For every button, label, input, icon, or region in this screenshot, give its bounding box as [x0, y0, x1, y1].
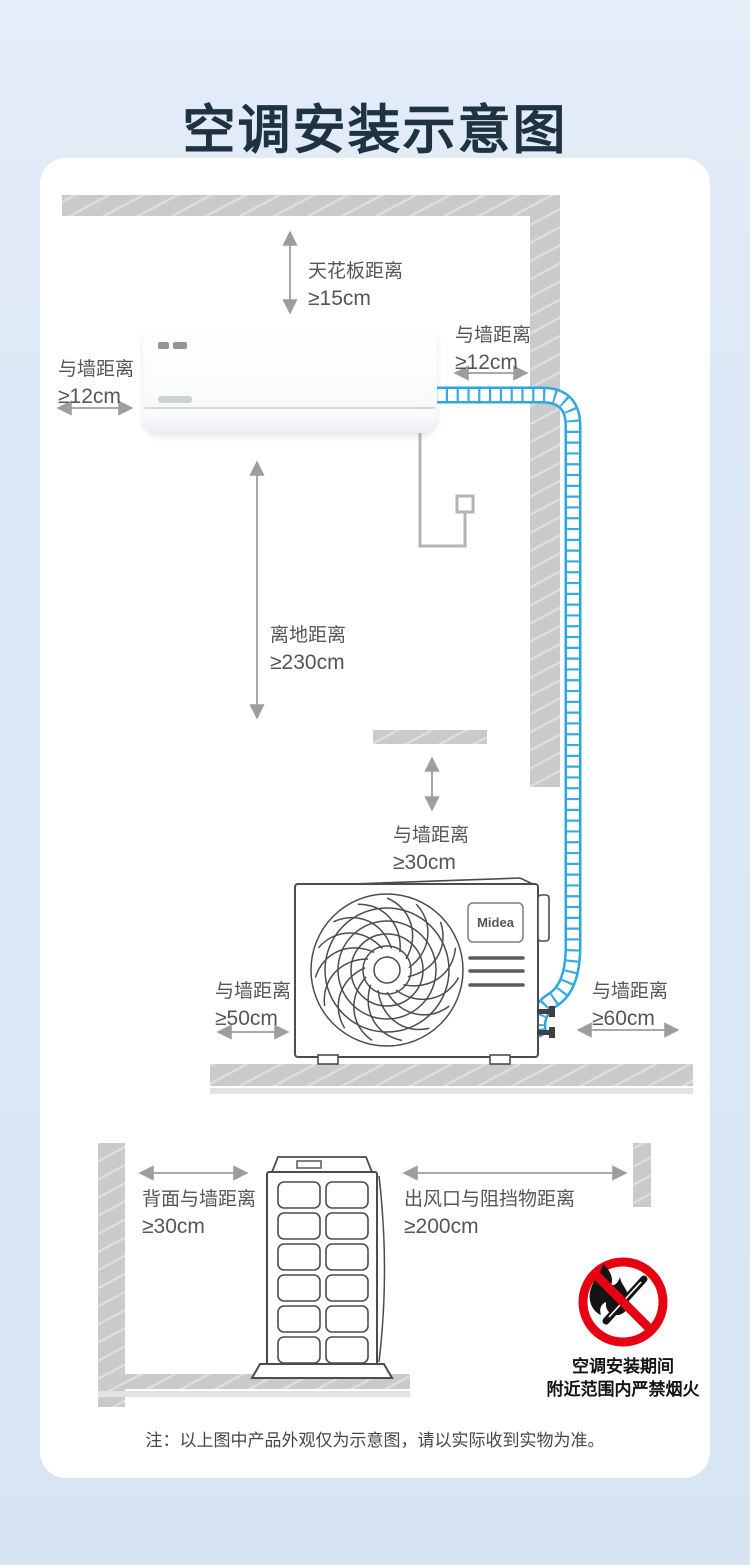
label-ceiling-distance: 天花板距离 ≥15cm	[308, 258, 403, 312]
midea-logo-badge: Midea	[468, 903, 523, 942]
indoor-unit-bottom-lip	[143, 410, 437, 433]
label-outdoor-left-distance: 与墙距离 ≥50cm	[215, 978, 291, 1032]
label-outlet-clearance: 出风口与阻挡物距离 ≥200cm	[404, 1186, 575, 1240]
page-title: 空调安装示意图	[0, 88, 750, 164]
power-cord	[420, 430, 473, 546]
power-socket	[457, 496, 473, 512]
disclaimer-note: 注：以上图中产品外观仅为示意图，请以实际收到实物为准。	[40, 1426, 710, 1451]
outdoor-floor	[210, 1064, 693, 1094]
page: 空调安装示意图	[0, 0, 750, 1565]
label-floor-clearance: 离地距离 ≥230cm	[270, 622, 346, 676]
outdoor-unit-front: Midea	[295, 878, 549, 1064]
side-handle	[538, 895, 549, 941]
unit-base	[252, 1364, 392, 1378]
indoor-unit-logo	[158, 342, 169, 349]
fire-warning-caption: 空调安装期间 附近范围内严禁烟火	[547, 1355, 700, 1401]
bottom-left-wall	[98, 1143, 125, 1407]
diagram-card: Midea	[40, 158, 710, 1478]
ceiling-bar	[62, 195, 560, 216]
shelf-obstruction	[373, 730, 487, 744]
unit-foot	[490, 1055, 510, 1064]
label-wall-right-distance: 与墙距离 ≥12cm	[455, 322, 531, 376]
outdoor-unit-back	[252, 1157, 392, 1378]
right-wall	[530, 195, 560, 787]
midea-logo-text: Midea	[477, 915, 515, 930]
label-outdoor-right-distance: 与墙距离 ≥60cm	[592, 978, 668, 1032]
label-wall-left-distance: 与墙距离 ≥12cm	[58, 356, 134, 410]
no-fire-icon	[583, 1262, 663, 1342]
air-outlet-flap	[145, 407, 435, 409]
indoor-unit-brand-mark	[158, 396, 192, 403]
unit-foot	[318, 1055, 338, 1064]
label-back-to-wall-distance: 背面与墙距离 ≥30cm	[142, 1186, 256, 1240]
label-above-outdoor-distance: 与墙距离 ≥30cm	[393, 822, 469, 876]
indoor-unit-logo	[173, 342, 187, 349]
indoor-unit	[143, 330, 437, 433]
bottom-right-wall-fragment	[633, 1143, 651, 1207]
